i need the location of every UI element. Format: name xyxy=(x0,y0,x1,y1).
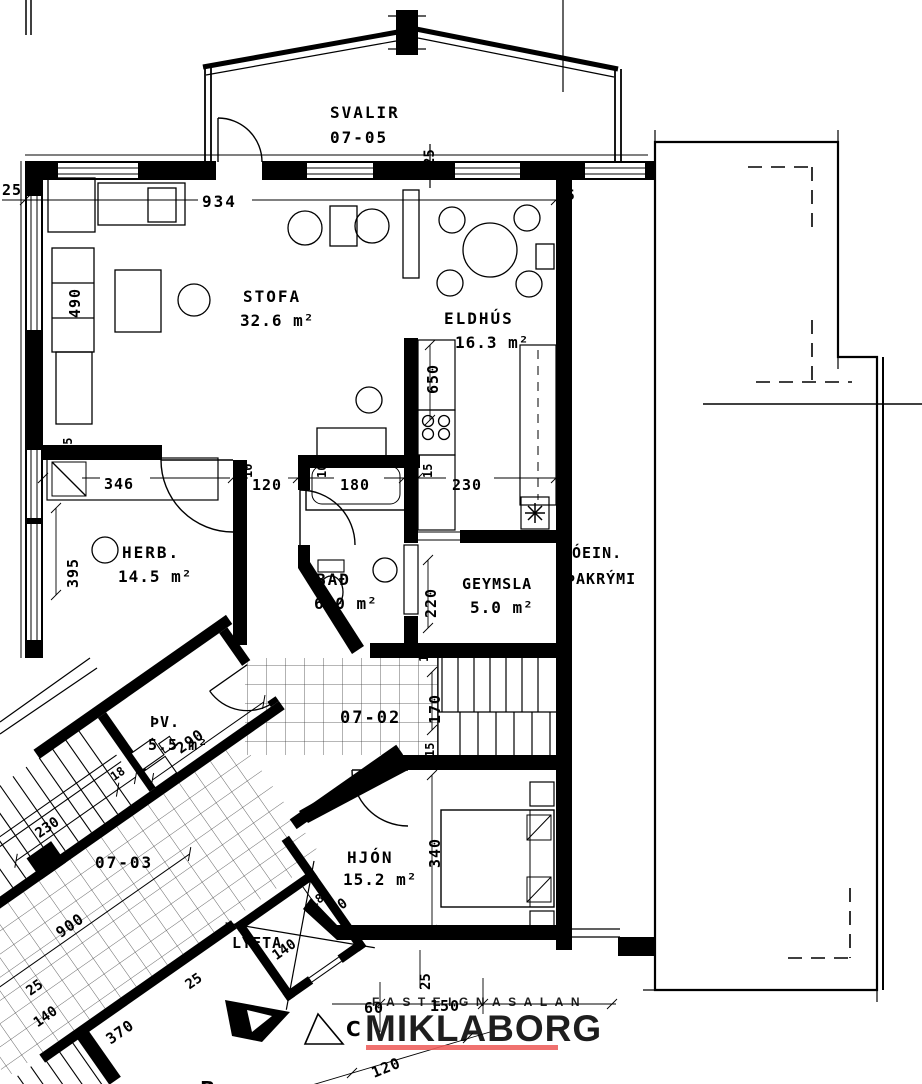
room-label-svalir: SVALIR xyxy=(330,103,400,122)
section-letter-c: C xyxy=(346,1017,361,1041)
room-label-lyfta: LYFTA xyxy=(232,934,282,952)
dim-15c: 15 xyxy=(421,464,435,478)
dim-25b: 25 xyxy=(422,149,438,166)
dim-934: 934 xyxy=(202,192,237,211)
room-label-thv: ÞV. xyxy=(150,713,180,731)
logo-tagline: FASTEIGNASALAN xyxy=(372,995,587,1009)
floor-drain-icon xyxy=(525,503,545,523)
room-label-geymsla: GEYMSLA xyxy=(462,575,532,593)
room-area-geymsla: 5.0 m² xyxy=(470,598,534,617)
room-label-thakrymi-2: ÞAKRÝMI xyxy=(566,569,636,588)
room-area-eldhus: 16.3 m² xyxy=(455,333,529,352)
dim-170: 170 xyxy=(426,694,444,724)
dim-490: 490 xyxy=(66,288,84,318)
dim-340: 340 xyxy=(426,838,444,868)
room-label-thakrymi-1: ÓEIN. xyxy=(572,543,622,562)
hall-lower-code: 07-03 xyxy=(95,853,153,872)
dim-15d: 15 xyxy=(423,743,437,757)
room-area-thv: 5.5 m² xyxy=(148,736,208,754)
dim-15a: 15 xyxy=(558,188,575,204)
dim-346: 346 xyxy=(104,475,134,493)
logo-red-underline xyxy=(366,1045,558,1050)
dim-220: 220 xyxy=(422,588,440,618)
dim-230: 230 xyxy=(452,476,482,494)
room-label-bad: BAÐ xyxy=(316,570,351,589)
dim-180: 180 xyxy=(340,476,370,494)
room-area-hjon: 15.2 m² xyxy=(343,870,417,889)
hall-upper-code: 07-02 xyxy=(340,708,401,728)
room-label-stofa: STOFA xyxy=(243,287,301,306)
dim-15b: 15 xyxy=(61,438,75,452)
section-letter-b: B xyxy=(200,1077,215,1084)
room-area-herb: 14.5 m² xyxy=(118,567,192,586)
chimney xyxy=(396,10,418,55)
dim-395: 395 xyxy=(64,558,82,588)
dim-25e: 25 xyxy=(418,973,434,990)
dim-10c: 10 xyxy=(417,648,431,662)
room-label-herb: HERB. xyxy=(122,543,180,562)
floorplan-canvas: 230 18 290 900 370 140 25 25 140 18 70 xyxy=(0,0,922,1084)
dim-10b: 10 xyxy=(315,464,329,478)
room-area-stofa: 32.6 m² xyxy=(240,311,314,330)
agency-logo: FASTEIGNASALAN MIKLABORG xyxy=(365,995,602,1050)
room-label-hjon: HJÓN xyxy=(347,848,394,867)
dim-25a: 25 xyxy=(2,181,22,199)
room-label-eldhus: ELDHÚS xyxy=(444,309,514,328)
room-area-bad: 6.0 m² xyxy=(314,594,378,613)
logo-miklaborg: MIKLABORG xyxy=(365,1008,602,1049)
dim-650: 650 xyxy=(424,364,442,394)
dim-120: 120 xyxy=(252,476,282,494)
room-code-svalir: 07-05 xyxy=(330,128,388,147)
